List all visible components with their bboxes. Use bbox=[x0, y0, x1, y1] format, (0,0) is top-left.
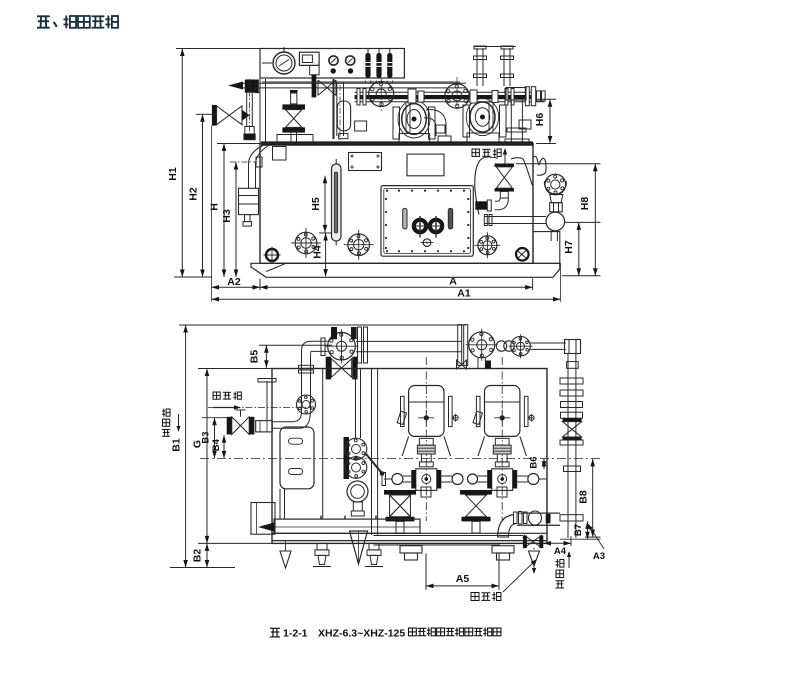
svg-text:B7: B7 bbox=[573, 524, 584, 536]
svg-text:B1: B1 bbox=[171, 438, 183, 452]
svg-text:A1: A1 bbox=[457, 288, 471, 300]
svg-text:B4: B4 bbox=[211, 438, 222, 451]
svg-text:H7: H7 bbox=[563, 240, 575, 254]
svg-text:1-2-1: 1-2-1 bbox=[283, 628, 308, 640]
svg-text:A3: A3 bbox=[593, 551, 605, 562]
svg-text:XHZ-6.3~XHZ-125: XHZ-6.3~XHZ-125 bbox=[318, 628, 405, 640]
svg-text:H6: H6 bbox=[534, 113, 546, 127]
svg-text:B2: B2 bbox=[192, 549, 204, 563]
svg-text:B6: B6 bbox=[529, 456, 540, 468]
svg-text:H8: H8 bbox=[579, 197, 591, 211]
svg-text:A5: A5 bbox=[456, 573, 470, 585]
svg-text:H2: H2 bbox=[188, 187, 200, 201]
svg-text:B5: B5 bbox=[249, 350, 261, 364]
svg-text:H3: H3 bbox=[221, 209, 233, 223]
svg-text:G: G bbox=[192, 440, 204, 448]
svg-text:H5: H5 bbox=[310, 197, 322, 211]
svg-text:B8: B8 bbox=[577, 490, 589, 504]
svg-text:H1: H1 bbox=[167, 167, 179, 181]
svg-text:A: A bbox=[449, 276, 457, 288]
svg-text:H: H bbox=[209, 203, 221, 211]
svg-text:A4: A4 bbox=[554, 546, 567, 557]
svg-text:A2: A2 bbox=[227, 276, 241, 288]
svg-text:H4: H4 bbox=[312, 245, 324, 259]
